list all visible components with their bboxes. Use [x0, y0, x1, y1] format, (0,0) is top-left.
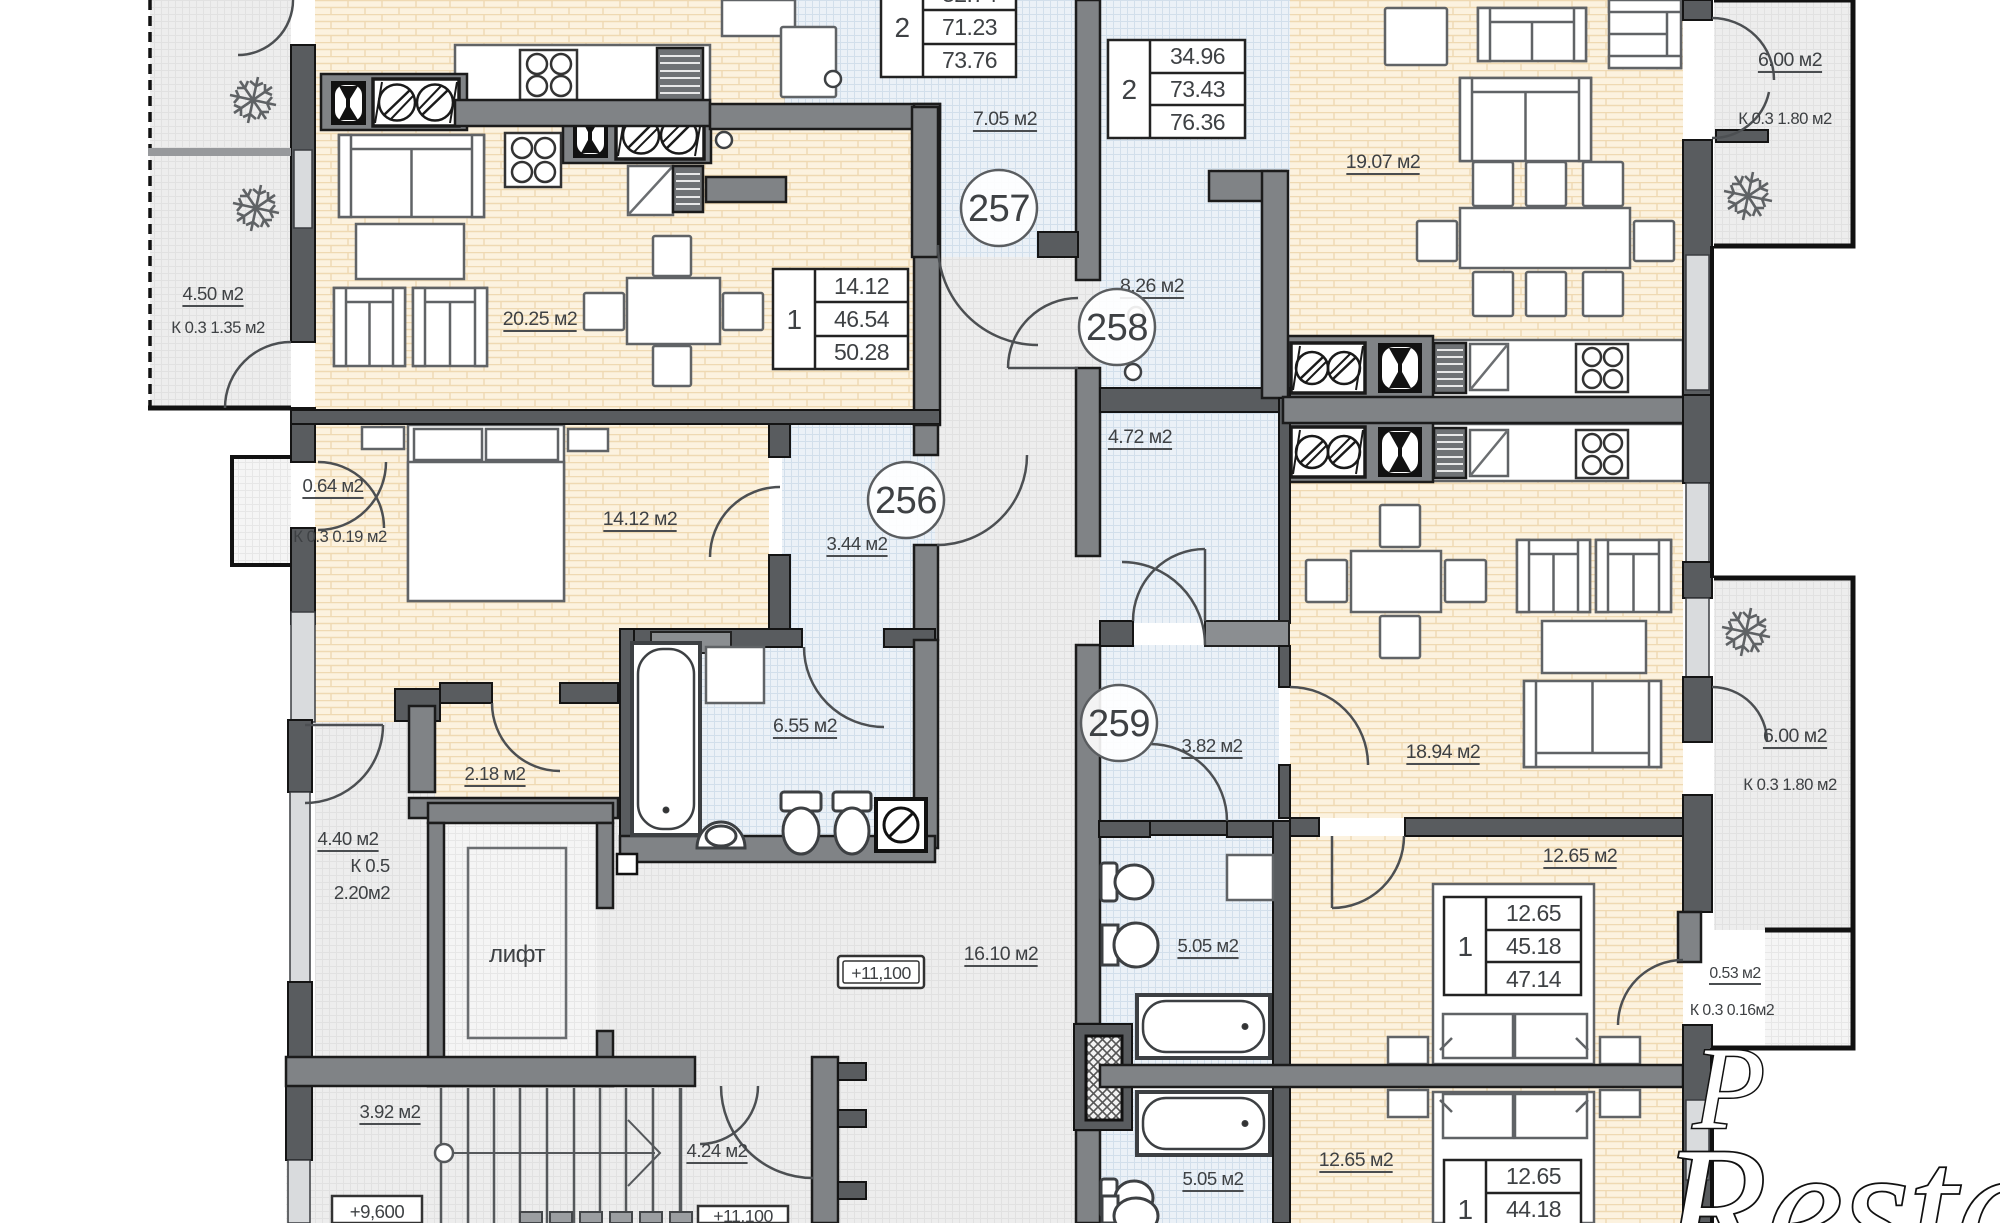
svg-text:5.05 м2: 5.05 м2 [1178, 935, 1239, 956]
svg-text:12.65 м2: 12.65 м2 [1543, 845, 1617, 867]
svg-text:73.76: 73.76 [942, 47, 997, 73]
svg-text:4.24 м2: 4.24 м2 [687, 1140, 748, 1161]
svg-text:4.50 м2: 4.50 м2 [183, 283, 244, 304]
svg-text:73.43: 73.43 [1170, 76, 1225, 102]
svg-text:14.12: 14.12 [834, 273, 889, 299]
svg-text:46.54: 46.54 [834, 306, 890, 332]
svg-text:12.65: 12.65 [1506, 900, 1561, 926]
svg-text:К 0.3 1.35 м2: К 0.3 1.35 м2 [171, 318, 265, 337]
svg-text:45.18: 45.18 [1506, 933, 1561, 959]
svg-text:71.23: 71.23 [942, 14, 997, 40]
svg-text:0.53 м2: 0.53 м2 [1709, 965, 1760, 982]
svg-text:1: 1 [786, 304, 801, 335]
svg-text:4.40 м2: 4.40 м2 [318, 828, 379, 849]
svg-text:3.92 м2: 3.92 м2 [360, 1101, 421, 1122]
svg-text:19.07 м2: 19.07 м2 [1346, 151, 1420, 173]
svg-text:44.18: 44.18 [1506, 1196, 1561, 1222]
svg-text:5.05 м2: 5.05 м2 [1183, 1168, 1244, 1189]
svg-text:76.36: 76.36 [1170, 109, 1225, 135]
svg-text:К 0.3 0.19 м2: К 0.3 0.19 м2 [293, 527, 387, 546]
svg-text:2: 2 [894, 12, 909, 43]
svg-text:6.00 м2: 6.00 м2 [1758, 49, 1822, 71]
svg-text:257: 257 [968, 188, 1030, 230]
svg-text:6.55 м2: 6.55 м2 [773, 715, 837, 737]
svg-text:К 0.5: К 0.5 [350, 855, 390, 876]
svg-text:16.10 м2: 16.10 м2 [964, 943, 1038, 965]
svg-text:18.94 м2: 18.94 м2 [1406, 741, 1480, 763]
svg-text:2: 2 [1121, 74, 1136, 105]
svg-text:2.20м2: 2.20м2 [334, 882, 390, 903]
svg-text:47.14: 47.14 [1506, 966, 1562, 992]
svg-text:К 0.3 1.80 м2: К 0.3 1.80 м2 [1738, 109, 1832, 128]
svg-text:34.96: 34.96 [1170, 43, 1225, 69]
svg-text:20.25 м2: 20.25 м2 [503, 308, 577, 330]
svg-text:Restate: Restate [1661, 1113, 2000, 1223]
svg-text:259: 259 [1088, 703, 1150, 745]
svg-text:258: 258 [1086, 307, 1148, 349]
svg-text:+11,100: +11,100 [713, 1206, 773, 1223]
svg-text:3.44 м2: 3.44 м2 [827, 533, 888, 554]
svg-text:лифт: лифт [489, 941, 545, 968]
svg-text:0.64 м2: 0.64 м2 [303, 475, 364, 496]
svg-text:14.12 м2: 14.12 м2 [603, 508, 677, 530]
svg-text:1: 1 [1457, 1194, 1472, 1223]
svg-text:+9,600: +9,600 [350, 1201, 405, 1222]
svg-text:7.05 м2: 7.05 м2 [973, 108, 1037, 130]
svg-text:+11,100: +11,100 [851, 963, 911, 983]
svg-text:К 0.3 0.16м2: К 0.3 0.16м2 [1690, 1002, 1774, 1019]
svg-text:6.00 м2: 6.00 м2 [1763, 725, 1827, 747]
svg-text:К 0.3 1.80 м2: К 0.3 1.80 м2 [1743, 775, 1837, 794]
svg-text:32.74: 32.74 [942, 0, 998, 7]
svg-text:12.65: 12.65 [1506, 1163, 1561, 1189]
svg-text:2.18 м2: 2.18 м2 [465, 763, 526, 784]
svg-text:50.28: 50.28 [834, 339, 889, 365]
svg-text:1: 1 [1457, 931, 1472, 962]
svg-text:3.82 м2: 3.82 м2 [1182, 735, 1243, 756]
svg-text:4.72 м2: 4.72 м2 [1108, 426, 1172, 448]
svg-text:12.65 м2: 12.65 м2 [1319, 1149, 1393, 1171]
svg-text:256: 256 [875, 480, 937, 522]
